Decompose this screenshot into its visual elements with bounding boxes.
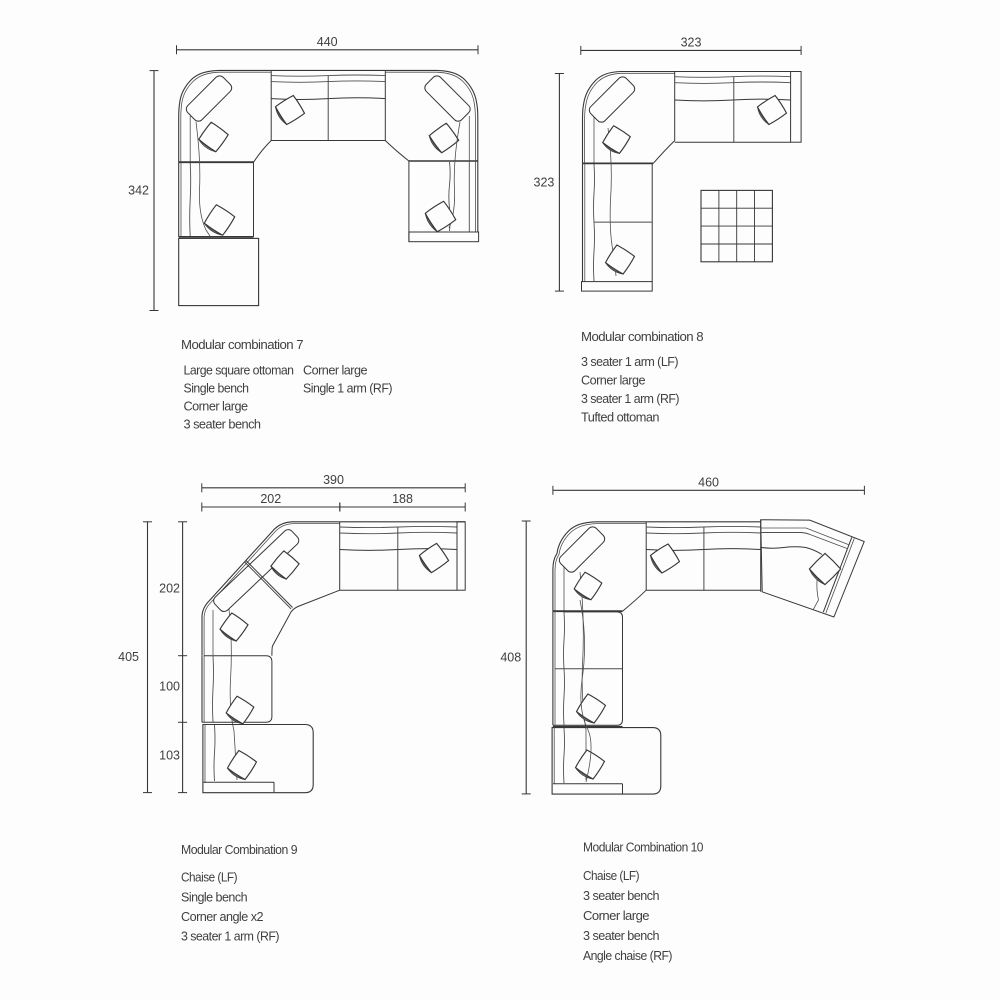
svg-text:Corner large: Corner large — [583, 908, 649, 923]
svg-text:3 seater 1 arm (RF): 3 seater 1 arm (RF) — [181, 928, 279, 943]
svg-text:323: 323 — [681, 35, 702, 49]
svg-text:100: 100 — [159, 680, 180, 694]
svg-text:Large square ottoman: Large square ottoman — [184, 363, 294, 378]
svg-text:408: 408 — [500, 651, 521, 665]
svg-text:202: 202 — [260, 492, 281, 506]
svg-text:323: 323 — [534, 175, 555, 189]
svg-text:3 seater bench: 3 seater bench — [583, 928, 659, 943]
svg-text:Chaise (LF): Chaise (LF) — [181, 870, 237, 885]
svg-text:Single bench: Single bench — [181, 890, 247, 905]
svg-text:Modular combination 8: Modular combination 8 — [581, 329, 703, 344]
svg-text:460: 460 — [698, 475, 719, 489]
svg-text:188: 188 — [392, 492, 413, 506]
svg-text:440: 440 — [317, 35, 338, 49]
svg-text:Corner large: Corner large — [303, 363, 367, 378]
svg-text:3 seater 1 arm (RF): 3 seater 1 arm (RF) — [581, 391, 679, 406]
svg-text:3 seater 1 arm (LF): 3 seater 1 arm (LF) — [581, 354, 678, 369]
svg-text:Tufted ottoman: Tufted ottoman — [581, 410, 659, 425]
svg-text:Angle chaise (RF): Angle chaise (RF) — [583, 948, 672, 963]
svg-text:405: 405 — [118, 650, 139, 664]
svg-text:Corner large: Corner large — [581, 373, 645, 388]
svg-text:3 seater bench: 3 seater bench — [583, 888, 659, 903]
svg-text:390: 390 — [323, 473, 344, 487]
svg-text:342: 342 — [128, 184, 149, 198]
svg-text:3 seater bench: 3 seater bench — [184, 417, 261, 432]
svg-text:Single 1 arm (RF): Single 1 arm (RF) — [303, 381, 392, 396]
svg-text:Chaise (LF): Chaise (LF) — [583, 868, 639, 883]
svg-text:Corner large: Corner large — [184, 399, 248, 414]
svg-text:Corner angle x2: Corner angle x2 — [181, 909, 263, 924]
svg-text:Modular combination 7: Modular combination 7 — [181, 337, 303, 352]
svg-text:Modular Combination 10: Modular Combination 10 — [583, 840, 703, 855]
svg-text:Modular Combination 9: Modular Combination 9 — [181, 842, 297, 857]
svg-text:202: 202 — [159, 582, 180, 596]
svg-text:Single bench: Single bench — [184, 381, 249, 396]
svg-text:103: 103 — [159, 749, 180, 763]
